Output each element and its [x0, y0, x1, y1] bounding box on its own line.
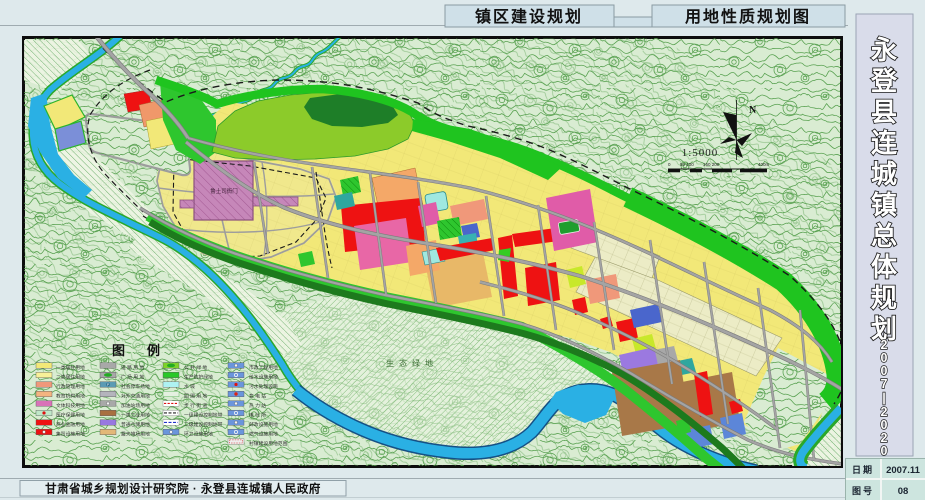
- svg-text:县: 县: [871, 97, 897, 127]
- svg-text:普通仓储用地: 普通仓储用地: [121, 421, 150, 428]
- svg-text:0: 0: [881, 444, 888, 458]
- svg-text:广 场 用 地: 广 场 用 地: [121, 373, 144, 380]
- svg-text:社会停车场地: 社会停车场地: [121, 383, 150, 390]
- svg-text:镇区建设规划: 镇区建设规划: [475, 7, 583, 26]
- svg-text:步 行 街 道: 步 行 街 道: [184, 402, 207, 409]
- svg-text:文体科技用地: 文体科技用地: [56, 402, 85, 409]
- svg-text:用地性质规划图: 用地性质规划图: [685, 7, 811, 26]
- svg-text:一类居住用地: 一类居住用地: [56, 364, 85, 371]
- svg-text:二级建设控制地带: 二级建设控制地带: [184, 421, 223, 428]
- svg-text:医疗保健用地: 医疗保健用地: [56, 411, 85, 418]
- svg-text:规: 规: [871, 283, 897, 313]
- svg-text:变 电 站: 变 电 站: [249, 392, 266, 399]
- svg-text:0: 0: [881, 364, 888, 378]
- svg-text:2: 2: [881, 405, 888, 419]
- svg-text:道 路 用 地: 道 路 用 地: [121, 364, 144, 371]
- svg-text:400m: 400m: [758, 162, 770, 167]
- svg-text:1:5000: 1:5000: [682, 147, 719, 159]
- svg-text:2007.11: 2007.11: [886, 465, 921, 476]
- svg-text:市政工程用地: 市政工程用地: [249, 364, 278, 371]
- svg-text:0: 0: [881, 418, 888, 432]
- svg-text:行政管理用地: 行政管理用地: [56, 383, 85, 390]
- svg-text:加油站场用地: 加油站场用地: [121, 402, 150, 409]
- svg-text:N: N: [749, 105, 757, 116]
- svg-text:|: |: [882, 391, 886, 405]
- svg-text:鲁土司衙门: 鲁土司衙门: [210, 187, 238, 195]
- svg-text:一类工业用地: 一类工业用地: [121, 411, 150, 418]
- svg-text:连: 连: [871, 128, 898, 158]
- svg-text:燃气设施用地: 燃气设施用地: [249, 430, 278, 437]
- svg-text:永: 永: [871, 35, 897, 65]
- svg-text:体: 体: [871, 252, 898, 282]
- svg-text:邮政设施用地: 邮政设施用地: [249, 421, 278, 428]
- svg-text:环卫设施用地: 环卫设施用地: [184, 430, 213, 437]
- svg-text:生产防护绿地: 生产防护绿地: [184, 373, 213, 380]
- svg-text:总: 总: [871, 221, 897, 251]
- svg-text:污水处理设施: 污水处理设施: [249, 383, 278, 390]
- svg-text:公 共 绿 地: 公 共 绿 地: [184, 364, 207, 371]
- svg-text:0: 0: [881, 351, 888, 365]
- svg-text:2: 2: [881, 431, 888, 445]
- svg-text:镇: 镇: [871, 190, 897, 220]
- svg-text:图号: 图号: [852, 486, 874, 496]
- svg-text:2: 2: [881, 338, 888, 352]
- svg-text:城: 城: [871, 159, 897, 189]
- svg-text:甘肃省城乡规划设计研究院 · 永登县连城镇人民政府: 甘肃省城乡规划设计研究院 · 永登县连城镇人民政府: [45, 482, 321, 496]
- svg-text:150 200: 150 200: [703, 162, 720, 167]
- svg-text:日期: 日期: [852, 464, 874, 475]
- svg-text:图例: 图例: [112, 343, 182, 358]
- svg-text:教育机构用地: 教育机构用地: [56, 392, 85, 399]
- svg-text:登: 登: [870, 66, 898, 96]
- svg-text:一级建设控制地带: 一级建设控制地带: [184, 411, 223, 418]
- svg-text:7: 7: [881, 377, 888, 391]
- svg-text:生态绿地: 生态绿地: [386, 358, 438, 368]
- svg-text:村镇建设用地范围: 村镇建设用地范围: [249, 440, 288, 447]
- svg-text:08: 08: [898, 486, 909, 497]
- svg-text:电 信 所: 电 信 所: [249, 411, 266, 418]
- svg-text:水 域: 水 域: [184, 383, 195, 390]
- svg-text:园 圃 用 地: 园 圃 用 地: [184, 392, 207, 399]
- svg-text:50 100: 50 100: [680, 162, 694, 167]
- svg-text:热 力 站: 热 力 站: [249, 402, 266, 409]
- svg-text:二类居住用地: 二类居住用地: [56, 373, 85, 380]
- svg-text:集贸设施用地: 集贸设施用地: [56, 430, 85, 437]
- svg-text:对外交通用地: 对外交通用地: [121, 392, 150, 399]
- svg-text:露天堆场用地: 露天堆场用地: [121, 430, 150, 437]
- svg-text:商业金融用地: 商业金融用地: [56, 421, 85, 428]
- svg-text:给水设施用地: 给水设施用地: [249, 373, 278, 380]
